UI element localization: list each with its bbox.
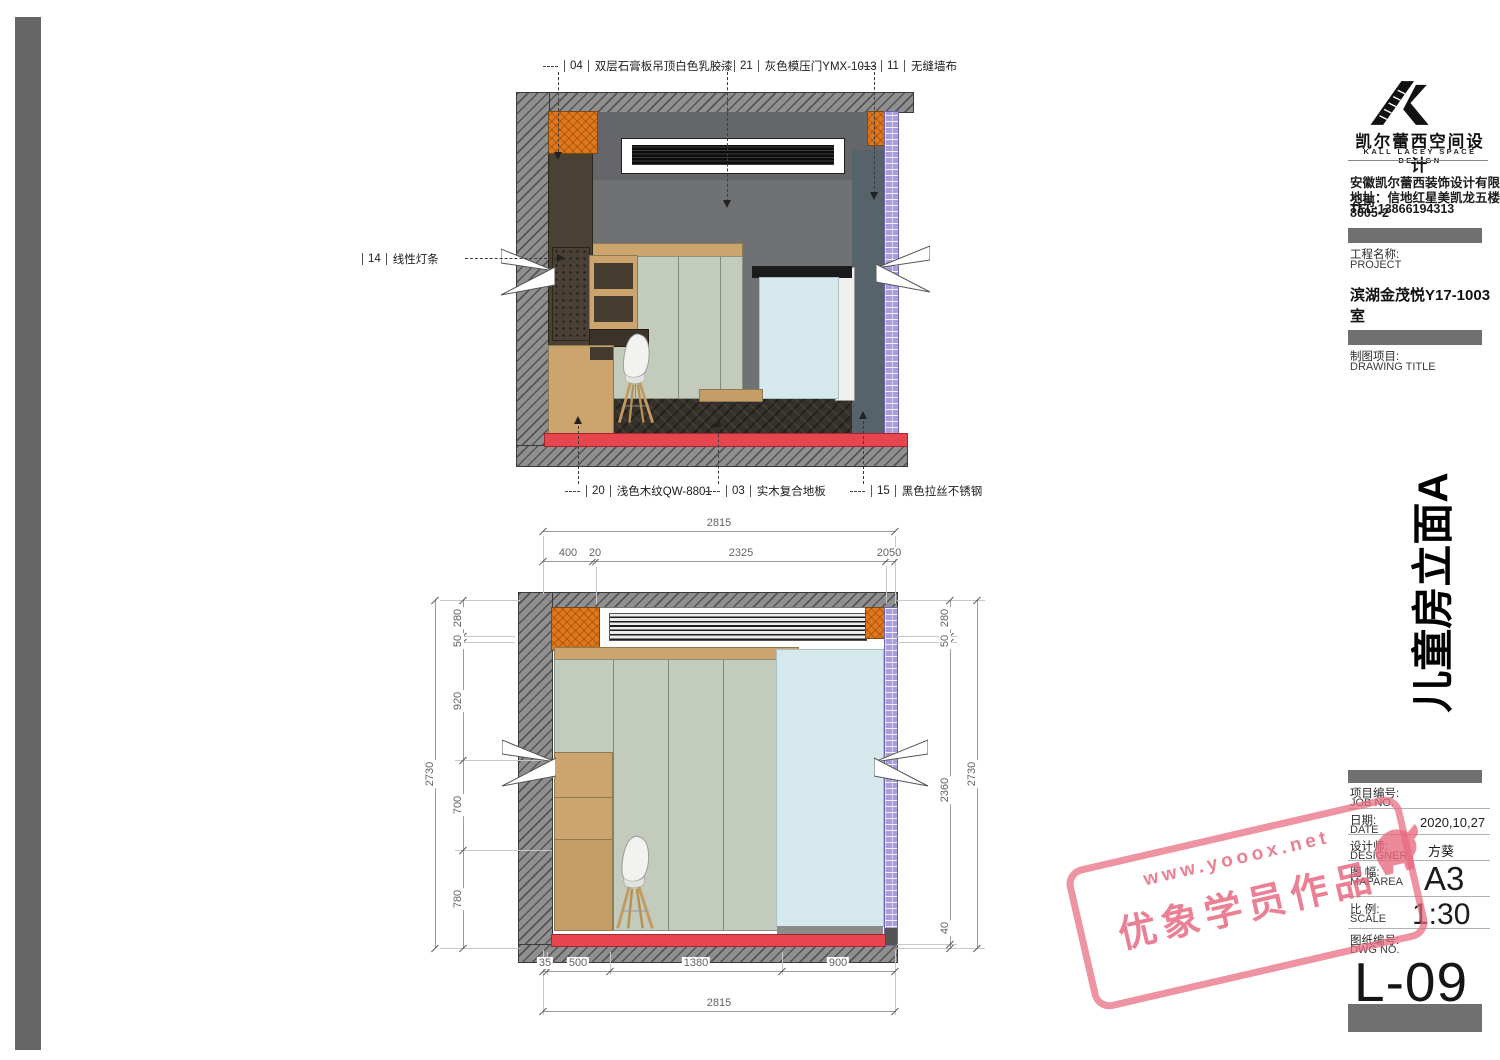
wallpaper-base-block (885, 928, 897, 945)
dim-label: 35 (537, 957, 553, 969)
callout-floor: 03 实木复合地板 (705, 483, 826, 499)
wardrobe-door-divider (678, 257, 679, 398)
callout-label: 无缝墙布 (911, 58, 957, 74)
callout-leader-dash (713, 66, 728, 67)
wall-section-top (517, 93, 913, 112)
dim-label: 900 (827, 957, 849, 969)
leader-arrow (554, 152, 562, 160)
section-bar (1348, 330, 1482, 345)
chair (608, 833, 662, 933)
designer-value: 方葵 (1428, 841, 1454, 860)
chair (610, 330, 662, 428)
extension-line (543, 536, 544, 594)
dim-label: 920 (452, 690, 464, 712)
break-symbol (876, 240, 930, 298)
callout-wood-finish: 20 浅色木纹QW-8801 (565, 483, 712, 499)
callout-leader-dash (860, 66, 875, 67)
floor-slab (517, 446, 907, 466)
callout-code: 04 (564, 60, 589, 72)
dim-label: 2325 (727, 547, 755, 559)
dim-label: 2360 (939, 776, 951, 804)
gray-molded-door (777, 650, 883, 926)
section-bar (1348, 770, 1482, 783)
extension-line (596, 566, 597, 604)
drawing-title-label-en: DRAWING TITLE (1350, 361, 1436, 373)
wardrobe-plinth (700, 390, 762, 401)
elephant-icon (1357, 810, 1431, 884)
dim-label: 20 (587, 547, 603, 559)
project-name: 滨湖金茂悦Y17-1003室 (1350, 284, 1500, 326)
beam-block (868, 112, 885, 145)
callout-code: 15 (871, 485, 896, 497)
section-bar (1348, 1004, 1482, 1032)
drawing-title-vertical: 儿童房立面A (1382, 462, 1478, 722)
leader-line (718, 429, 719, 484)
break-symbol (874, 733, 928, 793)
extension-line (886, 566, 887, 604)
dim-label: 2730 (424, 760, 436, 788)
date-value: 2020,10,27 (1420, 815, 1485, 830)
beam-block (866, 608, 885, 638)
door-base-strip (777, 926, 883, 935)
leader-arrow (574, 416, 582, 424)
wall-section-top (519, 593, 897, 608)
leader-arrow (557, 254, 565, 262)
drawer-divider (555, 797, 612, 798)
leader-line (465, 258, 557, 259)
extension-line (895, 950, 896, 1015)
beam-block (552, 608, 599, 650)
dim-line (543, 531, 895, 532)
callout-led-strip: 14 线性灯条 (362, 251, 439, 267)
door-jamb (836, 268, 854, 400)
dim-label: 400 (557, 547, 579, 559)
extension-line (440, 600, 520, 601)
wardrobe-door-divider (668, 660, 669, 930)
company-logo-k-icon (1365, 78, 1465, 128)
callout-code: 03 (726, 485, 751, 497)
wardrobe-door-divider (723, 660, 724, 930)
drawing-sheet: 04 双层石膏板吊顶白色乳胶漆 21 灰色模压门YMX-1013 11 无缝墙布… (0, 0, 1500, 1060)
dim-label: 280 (939, 607, 951, 629)
leader-line (558, 72, 559, 152)
dim-label: 2730 (966, 760, 978, 788)
leader-arrow (714, 419, 722, 427)
section-bar (1348, 228, 1482, 243)
break-symbol (502, 733, 556, 793)
leader-arrow (723, 200, 731, 208)
callout-wallpaper: 11 无缝墙布 (860, 58, 957, 74)
extension-line (440, 948, 519, 949)
callout-door: 21 灰色模压门YMX-1013 (713, 58, 877, 74)
leader-line (863, 421, 864, 484)
ac-vent-grille (610, 614, 866, 640)
dim-label: 280 (452, 607, 464, 629)
cabinet-lower-panel (555, 840, 612, 930)
leader-arrow (859, 411, 867, 419)
leader-line (727, 72, 728, 202)
break-symbol (501, 243, 555, 301)
callout-leader-dash (705, 491, 720, 492)
shelf-cavity (594, 263, 633, 289)
gray-molded-door (760, 278, 838, 398)
leader-line (578, 426, 579, 484)
dim-label: 50 (939, 633, 951, 649)
page-edge-bar (15, 17, 41, 1050)
extension-line (897, 948, 985, 949)
callout-label: 实木复合地板 (757, 483, 826, 499)
leader-line (874, 72, 875, 194)
dim-tick (431, 945, 439, 953)
callout-ceiling: 04 双层石膏板吊顶白色乳胶漆 (543, 58, 733, 74)
wardrobe-door-divider (720, 257, 721, 398)
beam-block (549, 112, 597, 153)
dim-label: 2815 (705, 517, 733, 529)
dim-label: 50 (452, 633, 464, 649)
callout-code: 21 (734, 60, 759, 72)
extension-line (455, 850, 552, 851)
dim-label: 500 (567, 957, 589, 969)
callout-leader-dash (543, 66, 558, 67)
titleblock-divider (1348, 160, 1488, 161)
dim-label: 700 (452, 794, 464, 816)
skirting-strip (552, 935, 885, 946)
callout-code: 11 (881, 60, 905, 72)
drawing-title-text: 儿童房立面A (1400, 472, 1461, 712)
dim-label: 40 (939, 920, 951, 936)
door-top-rail (752, 266, 852, 278)
leader-arrow (870, 192, 878, 200)
callout-label: 线性灯条 (393, 251, 439, 267)
dim-line (950, 600, 951, 948)
extension-line (897, 600, 985, 601)
callout-stainless: 15 黑色拉丝不锈钢 (850, 483, 982, 499)
dim-label: 1380 (682, 957, 710, 969)
company-tel: TEL:13866194313 (1350, 202, 1454, 216)
dim-label: 2050 (875, 547, 903, 559)
dim-label: 2815 (705, 997, 733, 1009)
company-logo-name-en: KALL LACEY SPACE DESIGN (1349, 147, 1491, 165)
callout-leader-dash (850, 491, 865, 492)
wardrobe-top-strip (555, 648, 798, 660)
shelf-cavity (594, 296, 633, 322)
callout-label: 黑色拉丝不锈钢 (902, 483, 983, 499)
callout-code: 20 (586, 485, 611, 497)
project-label-en: PROJECT (1350, 259, 1401, 271)
skirting-strip (545, 434, 907, 446)
callout-code: 14 (362, 253, 387, 265)
dim-tick (891, 528, 899, 536)
ac-vent-grille (632, 145, 834, 165)
dim-line (543, 971, 895, 972)
dim-line (543, 1011, 895, 1012)
dim-label: 780 (452, 888, 464, 910)
callout-leader-dash (565, 491, 580, 492)
callout-label: 浅色木纹QW-8801 (617, 483, 712, 499)
